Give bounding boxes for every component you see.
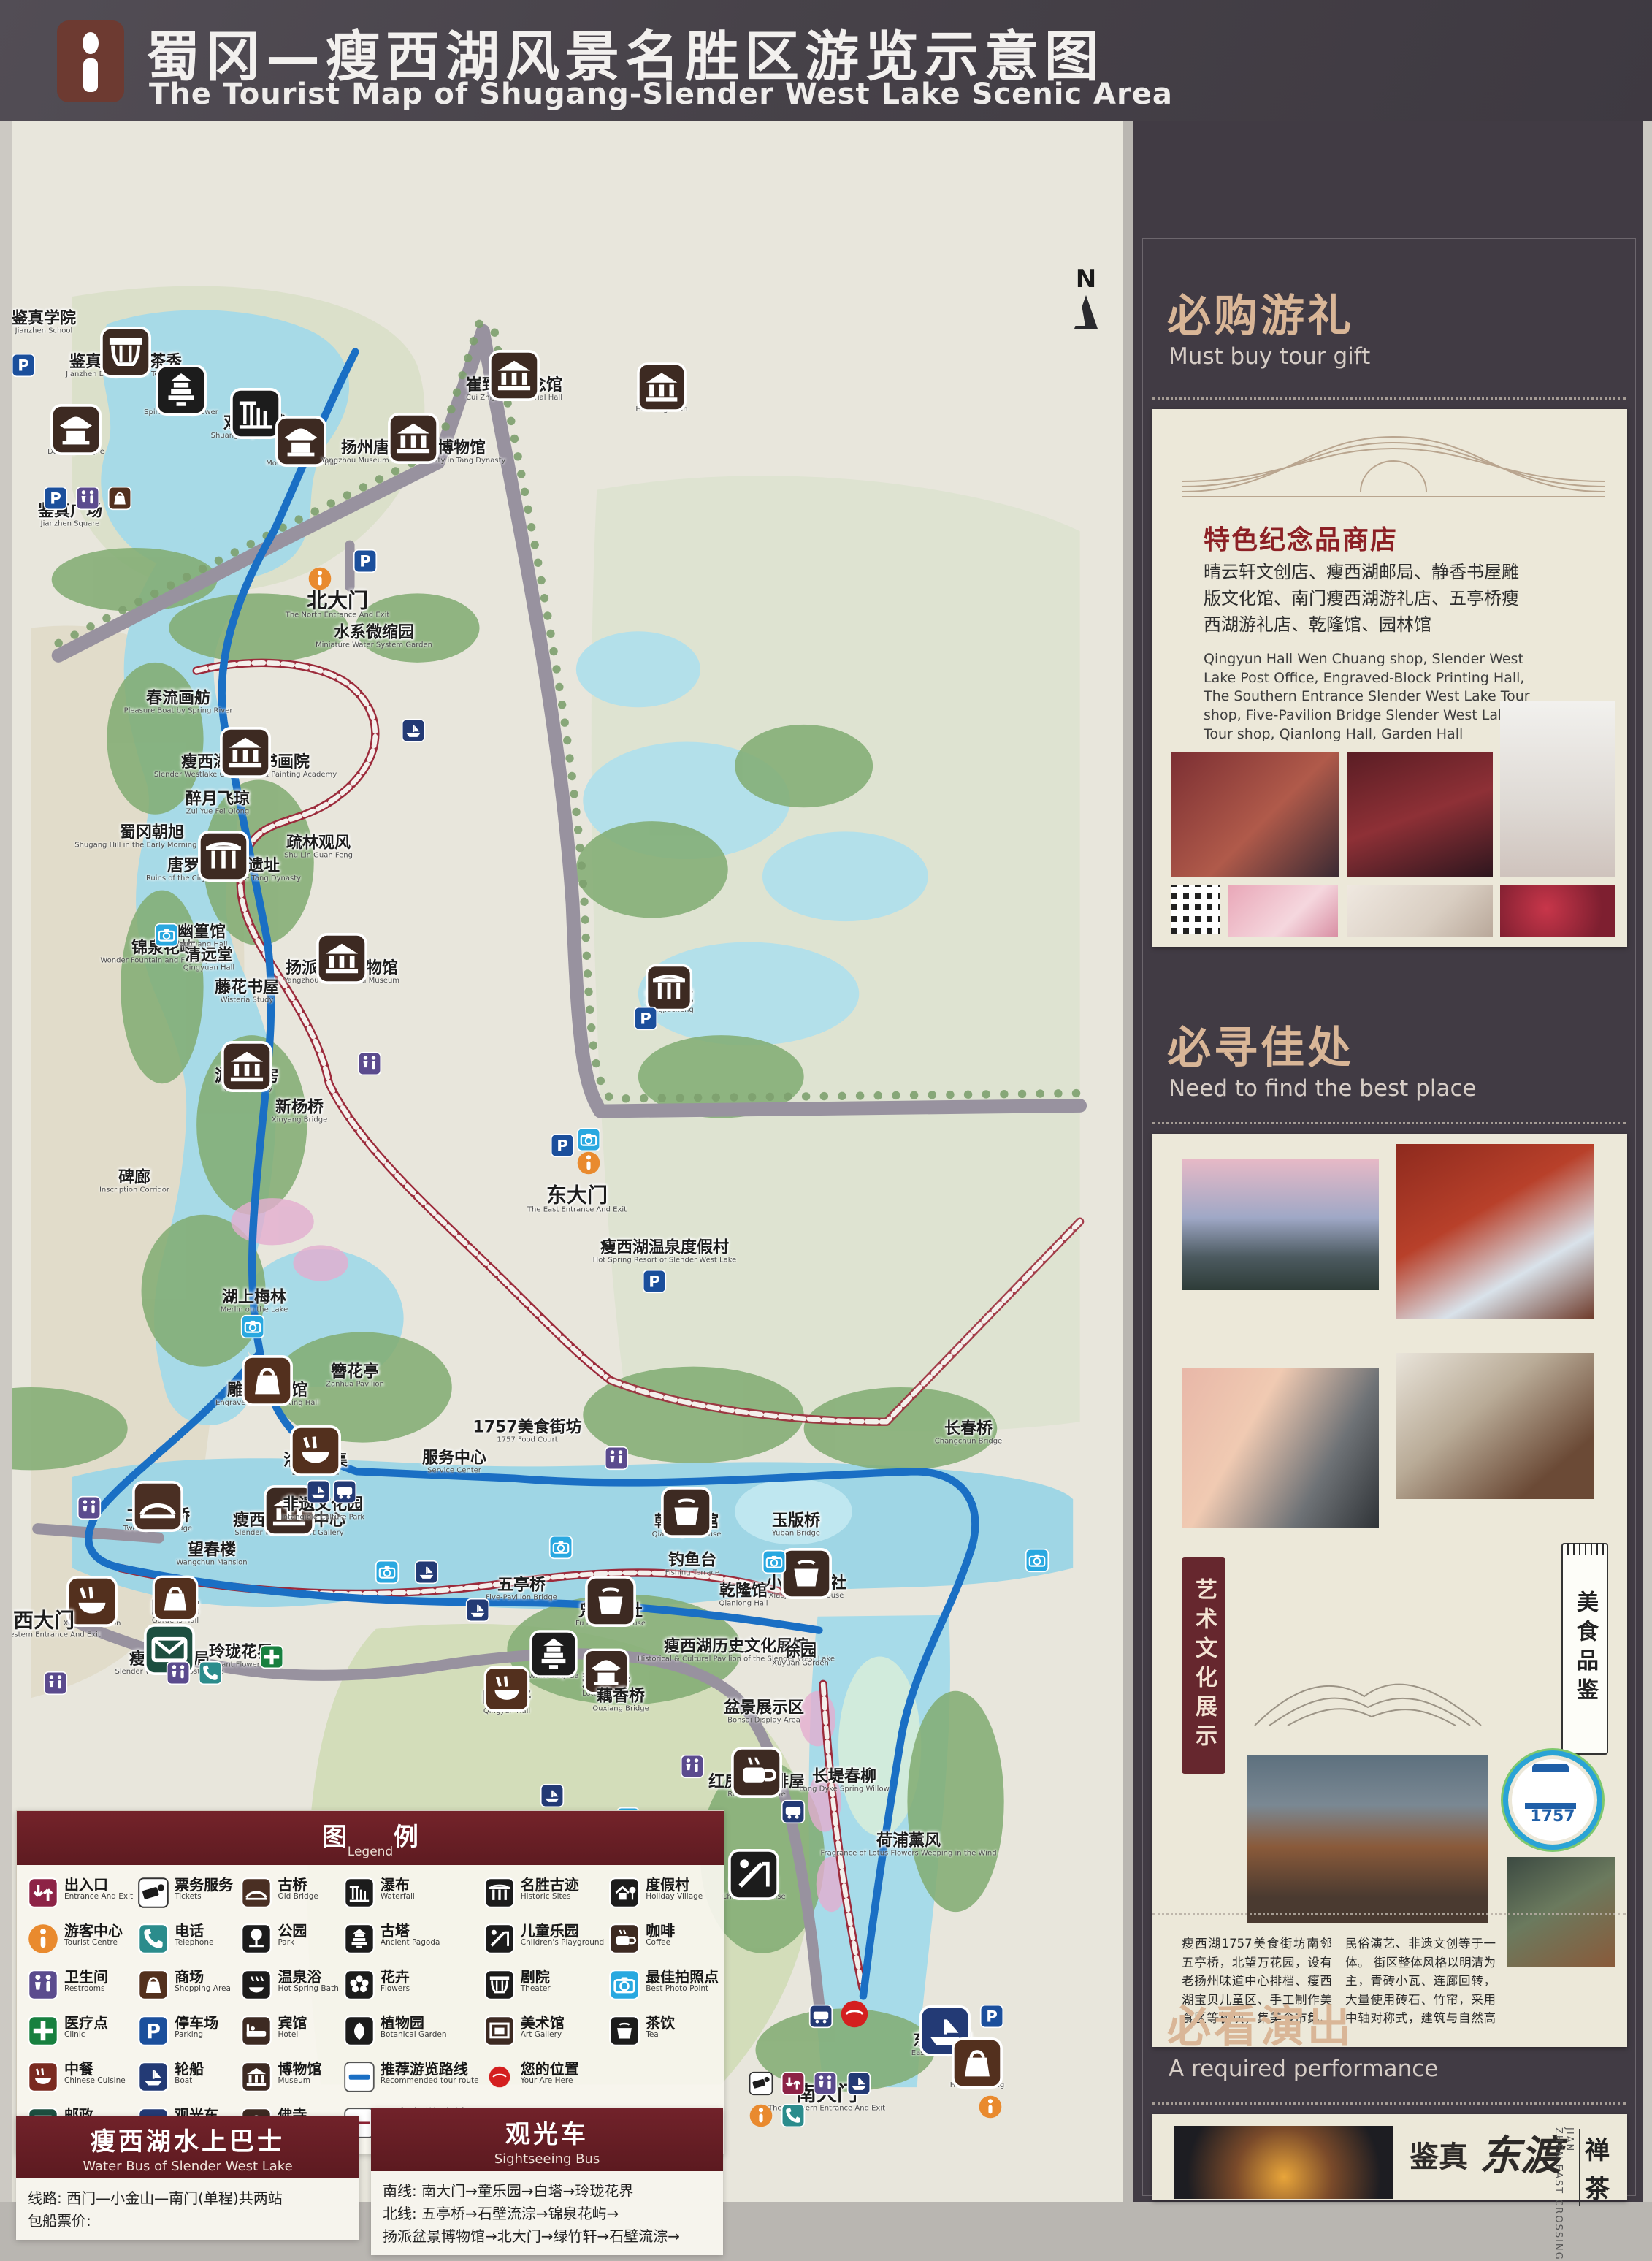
sightseeing-bus-line: 南线: 南大门→童乐园→白塔→玲珑花界 (383, 2180, 711, 2203)
tea-icon (597, 1574, 624, 1601)
park-icon (240, 1923, 272, 1955)
ticket-icon (137, 1877, 169, 1909)
performance-panel: 鉴真 东渡 JIAN ZHEN EAST CROSSING 禅 茶 (1152, 2114, 1627, 2200)
playground-icon (741, 1848, 767, 1874)
restroom-icon (27, 1969, 59, 2001)
map-label[interactable]: 游客书房Tourist Library (215, 1040, 279, 1094)
boat-icon (932, 2004, 958, 2030)
water-bus-panel: 瘦西湖水上巴士 Water Bus of Slender West Lake 线… (16, 2116, 359, 2240)
cuisine-icon (27, 2061, 59, 2093)
water-bus-info: 线路: 西门—小金山—南门(单程)共两站包船票价: (16, 2178, 359, 2240)
sightseeing-bus-line: 扬派盆景博物馆→北大门→绿竹轩→石壁流淙→ (383, 2225, 711, 2248)
photo-icon[interactable] (548, 1535, 573, 1560)
photo-icon[interactable] (375, 1560, 399, 1585)
map-label[interactable]: 北大门The North Entrance And Exit (286, 590, 390, 620)
legend-panel: 图 例 Legend 出入口Entrance And Exit游客中心Touri… (16, 1810, 724, 2154)
map-label[interactable]: 五亭桥Five-Pavilion Bridge (486, 1577, 557, 1603)
water-bus-title: 瘦西湖水上巴士 (16, 2121, 359, 2157)
map-label[interactable]: 汉陵苑Han Ling Yuan (635, 360, 687, 414)
legend-item: 古桥Old Bridge (240, 1877, 338, 1913)
legend-item-label: 温泉浴Hot Spring Bath (278, 1969, 338, 1994)
water-bus-line: 线路: 西门—小金山—南门(单程)共两站 (28, 2187, 348, 2210)
svg-text:P: P (18, 357, 29, 375)
water-bus-subtitle: Water Bus of Slender West Lake (16, 2159, 359, 2174)
photo-icon[interactable] (762, 1549, 787, 1574)
legend-item: 卫生间Restrooms (27, 1969, 133, 2005)
mountain-line-art (1247, 1645, 1488, 1733)
legend-item-label: 票务服务Tickets (175, 1877, 233, 1902)
restroom-icon[interactable] (75, 486, 100, 511)
photo-1757-interior: 1757美食街坊 1757 Food Court (1507, 1857, 1615, 1967)
map-label[interactable]: 藕香桥Ouxiang Bridge (592, 1688, 649, 1714)
map-label[interactable]: 盆景展示区Bonsai Display Area (724, 1700, 804, 1726)
museum-icon (501, 348, 527, 375)
temple-icon (593, 1644, 619, 1671)
parking-icon[interactable]: P (11, 353, 36, 378)
legend-item-label: 美术馆Art Gallery (521, 2015, 565, 2040)
svg-text:P: P (359, 553, 371, 571)
souvenir-panel: 特色纪念品商店 晴云轩文创店、瘦西湖邮局、静香书屋雕版文化馆、南门瘦西湖游礼店、… (1152, 409, 1627, 947)
tea-icon (673, 1485, 700, 1511)
map-label[interactable]: 水系微缩园Miniature Water System Garden (316, 625, 432, 650)
legend-item: 游客中心Tourist Centre (27, 1923, 133, 1959)
theater-icon (483, 1969, 516, 2001)
coffee-icon (608, 1923, 640, 1955)
map-label[interactable]: 雕版文化馆Engraved-Block Printing Hall (215, 1354, 319, 1408)
souvenir-photo-red-teapot (1500, 885, 1615, 937)
map-label[interactable]: 大明寺Daming Temple (47, 403, 104, 457)
pagoda-icon (540, 1627, 567, 1653)
divider (1152, 397, 1626, 400)
photo-icon[interactable] (576, 1127, 601, 1152)
map-label[interactable]: 钓鱼台Fishing Terrace (665, 1552, 719, 1578)
souvenir-shops-cn: 晴云轩文创店、瘦西湖邮局、静香书屋雕版文化馆、南门瘦西湖游礼店、五亭桥瘦西湖游礼… (1204, 559, 1532, 638)
boat-icon[interactable] (414, 1560, 439, 1585)
clinic-icon (27, 2015, 59, 2047)
temple-icon (63, 403, 89, 429)
sign-header: 蜀冈—瘦西湖风景名胜区游览示意图 The Tourist Map of Shug… (0, 0, 1652, 121)
parking-icon[interactable]: P (633, 1006, 658, 1031)
legend-item-label: 博物馆Museum (278, 2061, 321, 2086)
map-label[interactable]: 崔致远纪念馆Cui Zhiyuan Memorial Hall (466, 348, 562, 403)
map-label[interactable]: 春流画舫Pleasure Boat by Spring River (124, 690, 233, 716)
map-label[interactable]: 玉版桥Yuban Bridge (772, 1513, 820, 1539)
legend-item: 票务服务Tickets (137, 1877, 236, 1913)
clinic-icon[interactable] (259, 1644, 284, 1669)
legend-item: 您的位置Your Are Here (483, 2061, 604, 2097)
recommendations-sidebar: 必购游礼 Must buy tour gift 特色纪念品商店 晴云轩文创店、瘦… (1133, 121, 1643, 2202)
sec2-subtitle: Need to find the best place (1169, 1075, 1477, 1102)
map-label[interactable]: 唐罗城西门遗址Ruins of the City Gate in the Tan… (146, 829, 301, 883)
photo-icon (608, 1969, 640, 2001)
hotel-icon (240, 2015, 272, 2047)
divider (1152, 1122, 1626, 1124)
sec3-subtitle: A required performance (1169, 2056, 1438, 2082)
entrance-icon[interactable] (781, 2071, 806, 2096)
museum-icon (240, 2061, 272, 2093)
bus-icon[interactable] (781, 1799, 806, 1824)
legend-item: 公园Park (240, 1923, 338, 1959)
map-label[interactable]: 凫庄茶社Fu Manor Teahouse (575, 1574, 646, 1628)
legend-item-label: 植物园Botanical Garden (381, 2015, 447, 2040)
map-label[interactable]: 红房子咖啡屋Red House Cafe (708, 1745, 805, 1799)
map-label[interactable]: 扬州唐城遗址博物馆Yangzhou Museum of Ancient City… (321, 411, 506, 465)
bridge-icon (240, 1877, 272, 1909)
legend-item-label: 停车场Parking (175, 2015, 218, 2040)
sec3-title: 必看演出 (1167, 1991, 1354, 2055)
parking-icon[interactable]: P (550, 1133, 575, 1158)
map-label[interactable]: 徐园Xuyuan Garden (772, 1643, 829, 1669)
map-label[interactable]: 虹桥坊Hongqiao Fang (950, 2036, 1005, 2090)
restroom-icon[interactable] (77, 1495, 102, 1520)
legend-item: 中餐Chinese Cuisine (27, 2061, 133, 2097)
tea-icon (608, 2015, 640, 2047)
legend-item-label: 剧院Theater (521, 1969, 551, 1994)
boat-icon[interactable] (846, 2071, 871, 2096)
photo-icon[interactable] (1025, 1548, 1049, 1573)
legend-header: 图 例 Legend (17, 1811, 724, 1865)
legend-subtitle: Legend (17, 1845, 724, 1859)
qr-code (1171, 885, 1220, 934)
logo-1757-label: 1757 (1512, 1807, 1594, 1826)
legend-item: 度假村Holiday Village (608, 1877, 719, 1913)
svg-text:P: P (986, 2008, 998, 2026)
legend-item: 瀑布Waterfall (343, 1877, 479, 1913)
restroom-icon[interactable] (166, 1661, 191, 1685)
photo-luochun-hall: 洛春堂 Luochun Hall (1396, 1353, 1594, 1499)
historic-icon (483, 1877, 516, 1909)
map-label[interactable]: 簪花亭Zanhua Pavilion (326, 1364, 384, 1389)
museum-icon (649, 360, 675, 386)
map-label[interactable]: 扬派盆景博物馆Yangzhou Style Bonsai Museum (284, 931, 399, 985)
sightseeing-bus-panel: 观光车 Sightseeing Bus 南线: 南大门→童乐园→白塔→玲珑花界北… (371, 2108, 723, 2255)
svg-text:P: P (557, 1137, 568, 1156)
legend-item: 温泉浴Hot Spring Bath (240, 1969, 338, 2005)
legend-item-label: 出入口Entrance And Exit (64, 1877, 133, 1902)
calligraphy-jianzhen: 鉴真 (1410, 2133, 1468, 2176)
legend-item-label: 中餐Chinese Cuisine (64, 2061, 126, 2086)
hotspring-icon (240, 1969, 272, 2001)
best-places-panel: 凫庄茶社 Fu Manor Teahouse 小金山茶社 Xiaojin Hil… (1152, 1134, 1627, 2047)
zen-tea-chars: 禅 茶 (1579, 2129, 1627, 2206)
info-icon (27, 1923, 59, 1955)
playground-icon (483, 1923, 516, 1955)
theater-icon (112, 325, 139, 351)
legend-item: 最佳拍照点Best Photo Point (608, 1969, 719, 2005)
souvenir-shops-en: Qingyun Hall Wen Chuang shop, Slender We… (1204, 650, 1532, 744)
souvenir-photo-teacups (1347, 885, 1493, 937)
cuisine-icon (494, 1662, 520, 1688)
zen-char: 禅 (1579, 2129, 1614, 2167)
legend-item-label: 最佳拍照点Best Photo Point (646, 1969, 719, 1994)
water-bus-line: 包船票价: (28, 2210, 348, 2233)
legend-item-label: 茶饮Tea (646, 2015, 675, 2040)
legend-item-label: 游客中心Tourist Centre (64, 1923, 123, 1948)
souvenir-photo-teapots (1500, 701, 1615, 877)
photo-jianzhen-show (1174, 2126, 1393, 2199)
temple-icon (288, 414, 314, 441)
info-icon (57, 20, 124, 102)
flower-icon (343, 1969, 375, 2001)
map-label[interactable]: 碑廊Inscription Corridor (99, 1170, 169, 1195)
logo-1757-food-court: 1757 (1507, 1755, 1598, 1845)
map-label[interactable]: 东大门The East Entrance And Exit (527, 1185, 627, 1215)
legend-item: 咖啡Coffee (608, 1923, 719, 1959)
legend-item-label: 名胜古迹Historic Sites (521, 1877, 579, 1902)
info-icon[interactable] (307, 566, 332, 591)
info-icon[interactable] (576, 1151, 601, 1175)
legend-item: 剧院Theater (483, 1969, 604, 2005)
legend-item: 宾馆Hotel (240, 2015, 338, 2051)
souvenir-photo-pink-teapot (1228, 885, 1338, 937)
legend-item-label: 医疗点Clinic (64, 2015, 108, 2040)
historic-icon (656, 961, 682, 987)
bus-icon[interactable] (332, 1479, 357, 1504)
legend-item-label: 古桥Old Bridge (278, 1877, 318, 1902)
divider (1152, 1913, 1626, 1915)
sec2-title: 必寻佳处 (1167, 1013, 1354, 1076)
phone-icon (137, 1923, 169, 1955)
shopping-icon (137, 1969, 169, 2001)
map-label[interactable]: 服务中心Service Center (422, 1450, 486, 1476)
map-label[interactable]: 童乐园Children Paradise (722, 1848, 785, 1902)
holiday-icon (608, 1877, 640, 1909)
calligraphy-dongdu: 东渡 (1480, 2123, 1561, 2182)
north-label: N (1060, 264, 1112, 294)
bridge-icon (145, 1479, 171, 1506)
map-label[interactable]: 疏林观风Shu Lin Guan Feng (284, 835, 353, 861)
sightseeing-bus-subtitle: Sightseeing Bus (371, 2151, 723, 2167)
water-bus-header: 瘦西湖水上巴士 Water Bus of Slender West Lake (16, 2116, 359, 2178)
map-label[interactable]: 乾隆馆Qianlong Hall (719, 1583, 768, 1609)
legend-item: 博物馆Museum (240, 2061, 338, 2097)
photo-art-gallery: 瘦西湖艺术中心 Slender West Lake Art Gallery (1182, 1368, 1379, 1528)
photo-icon[interactable] (240, 1314, 265, 1339)
legend-item-label: 咖啡Coffee (646, 1923, 675, 1948)
legend-item: P停车场Parking (137, 2015, 236, 2051)
photo-1757-gate (1247, 1755, 1488, 1923)
map-label[interactable]: 二十四桥Twenty-four Bridge (123, 1479, 192, 1533)
boat-icon[interactable] (401, 718, 426, 743)
photo-fu-manor: 凫庄茶社 Fu Manor Teahouse (1182, 1159, 1379, 1290)
cuisine-icon (79, 1574, 105, 1601)
legend-item: 电话Telephone (137, 1923, 236, 1959)
map-label[interactable]: 湖上梅林Merlin on the Lake (221, 1289, 288, 1315)
legend-item: 商场Shopping Area (137, 1969, 236, 2005)
map-label[interactable]: 望春楼Wangchun Mansion (176, 1542, 247, 1568)
museum-icon (234, 1040, 260, 1066)
map-label[interactable]: 荷浦薰风Fragrance of Lotus Flowers Weeping i… (820, 1833, 996, 1858)
legend-item-label: 轮船Boat (175, 2061, 204, 2086)
post-icon (156, 1623, 183, 1649)
map-label[interactable]: 瘦西湖廉政书画院Slender Westlake Calligraphy & P… (154, 725, 337, 779)
you-are-here-marker (834, 1994, 875, 2035)
cuisine-icon (302, 1424, 329, 1450)
ticket-icon[interactable] (749, 2071, 773, 2096)
boat-icon (137, 2061, 169, 2093)
sightseeing-bus-line: 北线: 五亭桥→石壁流淙→锦泉花屿→ (383, 2203, 711, 2225)
parking-icon[interactable]: P (43, 486, 68, 511)
tea-char: 茶 (1579, 2167, 1614, 2206)
legend-item: 古塔Ancient Pagoda (343, 1923, 479, 1959)
legend-item: 轮船Boat (137, 2061, 236, 2097)
pagoda-icon (168, 363, 194, 389)
botanical-icon (343, 2015, 375, 2047)
legend-item: 推荐游览路线Recommended tour route (343, 2061, 479, 2097)
sightseeing-bus-header: 观光车 Sightseeing Bus (371, 2108, 723, 2171)
legend-item-label: 儿童乐园Children's Playground (521, 1923, 604, 1948)
page-subtitle: The Tourist Map of Shugang-Slender West … (149, 77, 1595, 111)
legend-item-label: 电话Telephone (175, 1923, 213, 1948)
legend-item: 茶饮Tea (608, 2015, 719, 2051)
map-label[interactable]: 新杨桥Xinyang Bridge (272, 1099, 327, 1125)
map-label[interactable]: 长春桥Changchun Bridge (935, 1421, 1002, 1446)
map-label[interactable]: 园林馆Gardens Hall (151, 1571, 199, 1625)
show-name-en: JIAN ZHEN EAST CROSSING (1553, 2127, 1575, 2193)
photo-icon[interactable] (154, 923, 179, 948)
restroom-icon[interactable] (357, 1051, 382, 1076)
map-label[interactable]: 白塔White Pagoda (529, 1627, 579, 1681)
north-arrow: N (1060, 264, 1112, 326)
boat-icon[interactable] (465, 1598, 490, 1623)
legend-item-label: 您的位置Your Are Here (521, 2061, 579, 2086)
waterfall-icon (242, 386, 269, 413)
route-blue-icon (343, 2061, 375, 2093)
legend-item: 花卉Flowers (343, 1969, 479, 2005)
svg-text:P: P (146, 2020, 161, 2043)
restroom-icon[interactable] (813, 2071, 838, 2096)
restroom-icon[interactable] (680, 1754, 705, 1779)
bridge-line-art (1174, 422, 1613, 503)
map-label[interactable]: 长堤春柳Long Dyke Spring Willow (799, 1769, 890, 1794)
souvenir-shops-title: 特色纪念品商店 (1204, 519, 1398, 557)
sign-frame-right (1643, 121, 1652, 2202)
boat-icon[interactable] (540, 1783, 565, 1808)
artgallery-icon (483, 2015, 516, 2047)
legend-item-label: 瀑布Waterfall (381, 1877, 415, 1902)
map-label[interactable]: 乾隆茶馆Qianlong Teahouse (652, 1485, 722, 1539)
souvenir-photo-figurines (1347, 752, 1493, 877)
coffee-icon (743, 1745, 770, 1772)
tea-icon (793, 1547, 819, 1573)
restroom-icon[interactable] (43, 1671, 68, 1696)
legend-item: 出入口Entrance And Exit (27, 1877, 133, 1913)
info-icon[interactable] (978, 2094, 1003, 2119)
legend-item: 名胜古迹Historic Sites (483, 1877, 604, 1913)
entrance-icon (27, 1877, 59, 1909)
svg-text:P: P (640, 1010, 651, 1029)
shopping-icon (254, 1354, 280, 1380)
map-label[interactable]: 幽篁馆Youhuang Hall (175, 924, 227, 950)
sightseeing-bus-info: 南线: 南大门→童乐园→白塔→玲珑花界北线: 五亭桥→石壁流淙→锦泉花屿→扬派盆… (371, 2171, 723, 2255)
svg-text:P: P (50, 490, 61, 508)
phone-icon[interactable] (198, 1661, 223, 1685)
legend-item-label: 公园Park (278, 1923, 307, 1948)
souvenir-photo-shop (1171, 752, 1339, 877)
museum-icon (329, 931, 355, 958)
shopping-icon (964, 2036, 990, 2062)
legend-item: 植物园Botanical Garden (343, 2015, 479, 2051)
divider (1152, 2102, 1626, 2105)
bus-icon[interactable] (808, 2004, 833, 2029)
legend-item: 儿童乐园Children's Playground (483, 1923, 604, 1959)
map-label[interactable]: 1757美食街坊1757 Food Court (473, 1419, 581, 1445)
legend-item: 美术馆Art Gallery (483, 2015, 604, 2051)
museum-icon (232, 725, 259, 752)
legend-item-label: 商场Shopping Area (175, 1969, 231, 1994)
parking-icon[interactable]: P (979, 2004, 1004, 2029)
legend-item-label: 宾馆Hotel (278, 2015, 307, 2040)
legend-item-label: 古塔Ancient Pagoda (381, 1923, 440, 1948)
youarehere-icon (483, 2061, 516, 2093)
art-culture-banner: 艺术文化展示 (1182, 1557, 1225, 1774)
map-label[interactable]: 瘦西湖温泉度假村Hot Spring Resort of Slender Wes… (593, 1240, 737, 1265)
map-label[interactable]: 醉月飞琼Zui Yue Fei Qiong (186, 791, 250, 817)
historic-icon (210, 829, 237, 855)
legend-item-label: 卫生间Restrooms (64, 1969, 108, 1994)
legend-item-label: 推荐游览路线Recommended tour route (381, 2061, 479, 2086)
sec1-subtitle: Must buy tour gift (1169, 343, 1370, 370)
svg-text:P: P (649, 1273, 660, 1292)
sign-frame-left (0, 121, 12, 2202)
info-icon[interactable] (749, 2103, 773, 2128)
legend-item-label: 度假村Holiday Village (646, 1877, 703, 1902)
pagoda-icon (343, 1923, 375, 1955)
map-label[interactable]: 晴云轩Qingyun Hall (483, 1662, 531, 1716)
boat-icon[interactable] (306, 1479, 331, 1504)
map-label[interactable]: 西大门The Western Entrance And Exit (0, 1610, 101, 1640)
map-label[interactable]: 洛春雅集Luochun Hall (283, 1424, 348, 1478)
map-label[interactable]: 栖灵塔Spirit-Piercing Tower (144, 363, 218, 417)
legend-item-label: 花卉Flowers (381, 1969, 410, 1994)
parking-icon[interactable]: P (353, 549, 378, 573)
sightseeing-bus-title: 观光车 (371, 2114, 723, 2150)
map-label[interactable]: 清远堂Qingyuan Hall (183, 948, 234, 973)
map-label[interactable]: 藤花书屋Wisteria Study (215, 980, 279, 1005)
shopping-icon[interactable] (107, 486, 132, 511)
legend-item: 医疗点Clinic (27, 2015, 133, 2051)
museum-icon (400, 411, 427, 438)
photo-xiaojin-teahouse: 小金山茶社 Xiaojin Hill Teahouse (1396, 1144, 1594, 1319)
parking-icon: P (137, 2015, 169, 2047)
phone-icon[interactable] (781, 2103, 806, 2128)
restroom-icon[interactable] (604, 1446, 629, 1471)
waterfall-icon (343, 1877, 375, 1909)
food-tasting-banner: 美食品鉴 (1561, 1543, 1608, 1755)
sec1-title: 必购游礼 (1167, 281, 1354, 344)
parking-icon[interactable]: P (642, 1269, 667, 1294)
shopping-icon (162, 1571, 188, 1598)
